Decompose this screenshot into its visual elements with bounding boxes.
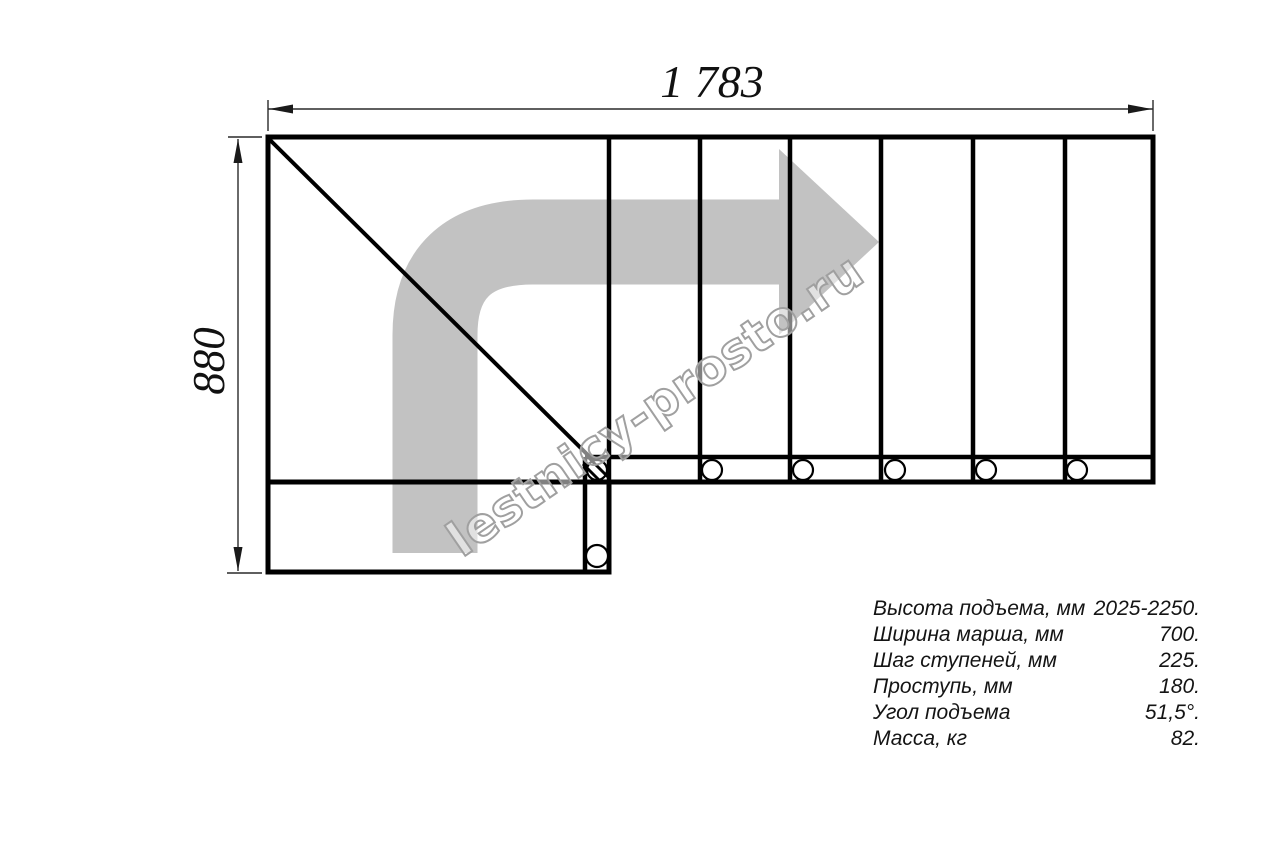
spec-value: 2025-2250. bbox=[1094, 596, 1200, 622]
fastener-circle-icon bbox=[885, 460, 905, 480]
fastener-circle-icon bbox=[976, 460, 996, 480]
spec-row-climb-angle: Угол подъема 51,5°. bbox=[873, 700, 1200, 726]
spec-value: 700. bbox=[1159, 622, 1200, 648]
fastener-circle-icon bbox=[702, 460, 722, 480]
spec-row-step-pitch: Шаг ступеней, мм 225. bbox=[873, 648, 1200, 674]
spec-label: Масса, кг bbox=[873, 726, 967, 752]
spec-label: Проступь, мм bbox=[873, 674, 1013, 700]
spec-row-height: Высота подъема, мм 2025-2250. bbox=[873, 596, 1200, 622]
spec-label: Высота подъема, мм bbox=[873, 596, 1085, 622]
dimension-height-label: 880 bbox=[184, 327, 234, 395]
arrowhead-right-icon bbox=[1128, 105, 1152, 114]
fastener-circle-icon bbox=[793, 460, 813, 480]
dimension-arrowheads bbox=[234, 105, 1153, 572]
spec-value: 180. bbox=[1159, 674, 1200, 700]
stair-drawing-page: { "page": { "background": "#ffffff" }, "… bbox=[0, 0, 1280, 853]
spec-row-mass: Масса, кг 82. bbox=[873, 726, 1200, 752]
spec-row-tread-depth: Проступь, мм 180. bbox=[873, 674, 1200, 700]
spec-label: Ширина марша, мм bbox=[873, 622, 1064, 648]
fastener-circle-icon bbox=[1067, 460, 1087, 480]
fastener-circle-icon bbox=[586, 545, 608, 567]
arrowhead-left-icon bbox=[269, 105, 293, 114]
arrowhead-up-icon bbox=[234, 139, 243, 163]
spec-label: Угол подъема bbox=[873, 700, 1010, 726]
spec-table: Высота подъема, мм 2025-2250. Ширина мар… bbox=[873, 596, 1200, 752]
spec-value: 82. bbox=[1171, 726, 1200, 752]
spec-label: Шаг ступеней, мм bbox=[873, 648, 1057, 674]
dimension-width-label: 1 783 bbox=[660, 56, 764, 107]
dimension-lines bbox=[227, 100, 1153, 573]
fastener-circles bbox=[586, 460, 1087, 567]
spec-value: 225. bbox=[1159, 648, 1200, 674]
spec-value: 51,5°. bbox=[1145, 700, 1200, 726]
arrowhead-down-icon bbox=[234, 547, 243, 571]
watermark-text: lestnicy-prosto.ru bbox=[437, 243, 874, 567]
spec-row-march-width: Ширина марша, мм 700. bbox=[873, 622, 1200, 648]
